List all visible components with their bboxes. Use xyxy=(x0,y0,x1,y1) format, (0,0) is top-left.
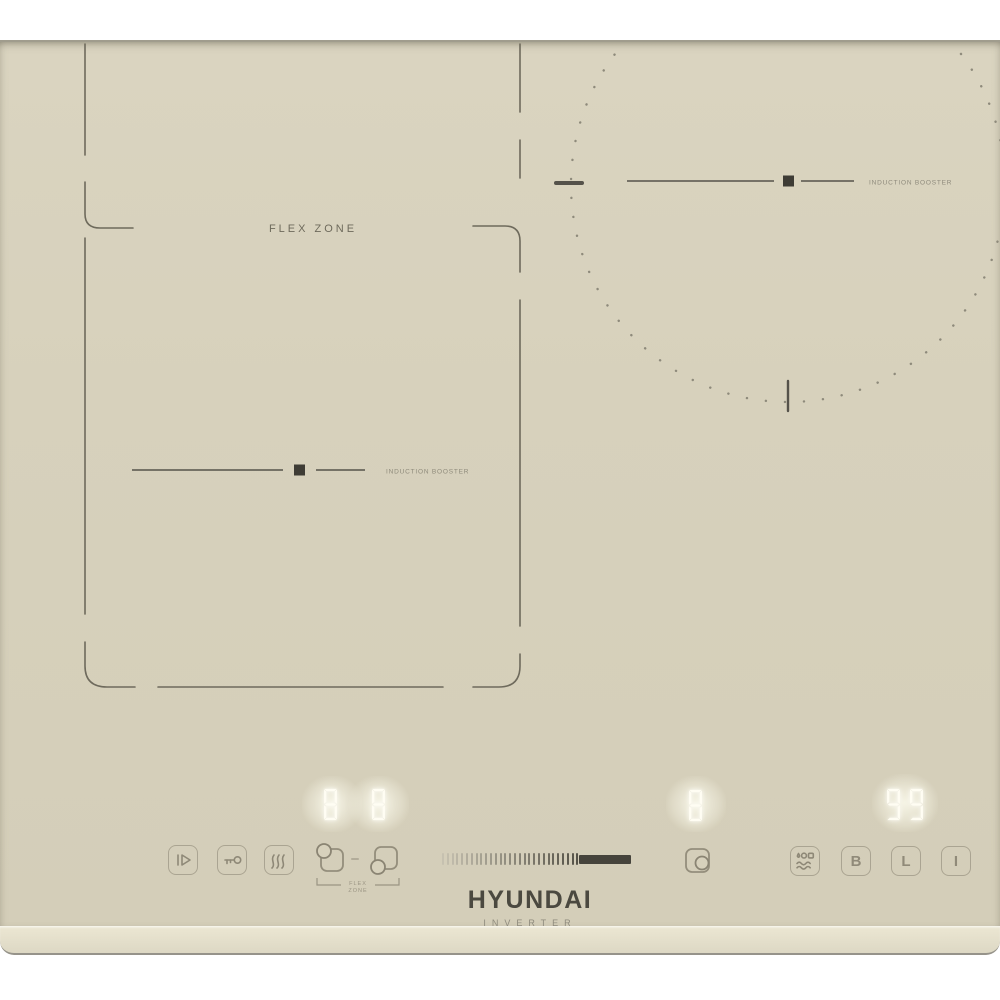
lock-button[interactable]: L xyxy=(891,846,921,876)
front-bevel-edge xyxy=(0,926,1000,955)
brand-logo: HYUNDAI INVERTER xyxy=(400,886,660,928)
boil-function-button[interactable] xyxy=(790,846,820,876)
booster-button-label: B xyxy=(851,853,862,870)
flex-zone-outline xyxy=(85,44,520,687)
right-zone-select-button[interactable] xyxy=(684,847,711,874)
cooktop-photo: FLEX ZONE INDUCTION BOOSTER INDUCTION BO… xyxy=(0,0,1000,1000)
zone-markings: FLEX ZONE INDUCTION BOOSTER INDUCTION BO… xyxy=(0,42,1000,926)
flex-rear-power-display xyxy=(321,787,340,822)
flex-zone-label: FLEX ZONE xyxy=(269,223,357,235)
flex-front-select-button[interactable] xyxy=(370,843,400,875)
key-icon xyxy=(219,847,245,873)
left-booster-label: INDUCTION BOOSTER xyxy=(386,469,469,476)
flex-front-power-display xyxy=(369,787,388,822)
right-zone-marker: INDUCTION BOOSTER xyxy=(556,42,1000,411)
brand-name: HYUNDAI xyxy=(400,886,660,915)
flex-selector-caption: FLEX ZONE xyxy=(314,877,402,897)
right-zone-power-display xyxy=(686,788,705,823)
flex-front-zone-icon xyxy=(370,843,400,875)
flex-link-dash xyxy=(351,858,359,860)
right-zone-select-icon xyxy=(684,847,711,874)
boil-steam-icon xyxy=(792,848,818,874)
flex-rear-select-button[interactable] xyxy=(316,843,346,875)
booster-button[interactable]: B xyxy=(841,846,871,876)
heat-waves-icon xyxy=(266,847,292,873)
flex-rear-zone-icon xyxy=(316,843,346,875)
power-button[interactable] xyxy=(168,845,198,875)
child-lock-button[interactable] xyxy=(217,845,247,875)
lock-button-label: L xyxy=(901,853,910,870)
onoff-button-label: I xyxy=(954,853,958,870)
flex-caption-line1: FLEX xyxy=(349,881,367,887)
power-play-icon xyxy=(170,847,196,873)
flex-caption-line2: ZONE xyxy=(348,888,367,894)
power-slider[interactable] xyxy=(442,851,634,867)
right-zone-dotted-circle xyxy=(571,42,1000,402)
onoff-button[interactable]: I xyxy=(941,846,971,876)
timer-display xyxy=(884,787,926,822)
left-zone-marker: INDUCTION BOOSTER xyxy=(132,465,469,476)
right-booster-label: INDUCTION BOOSTER xyxy=(869,180,952,187)
keep-warm-button[interactable] xyxy=(264,845,294,875)
